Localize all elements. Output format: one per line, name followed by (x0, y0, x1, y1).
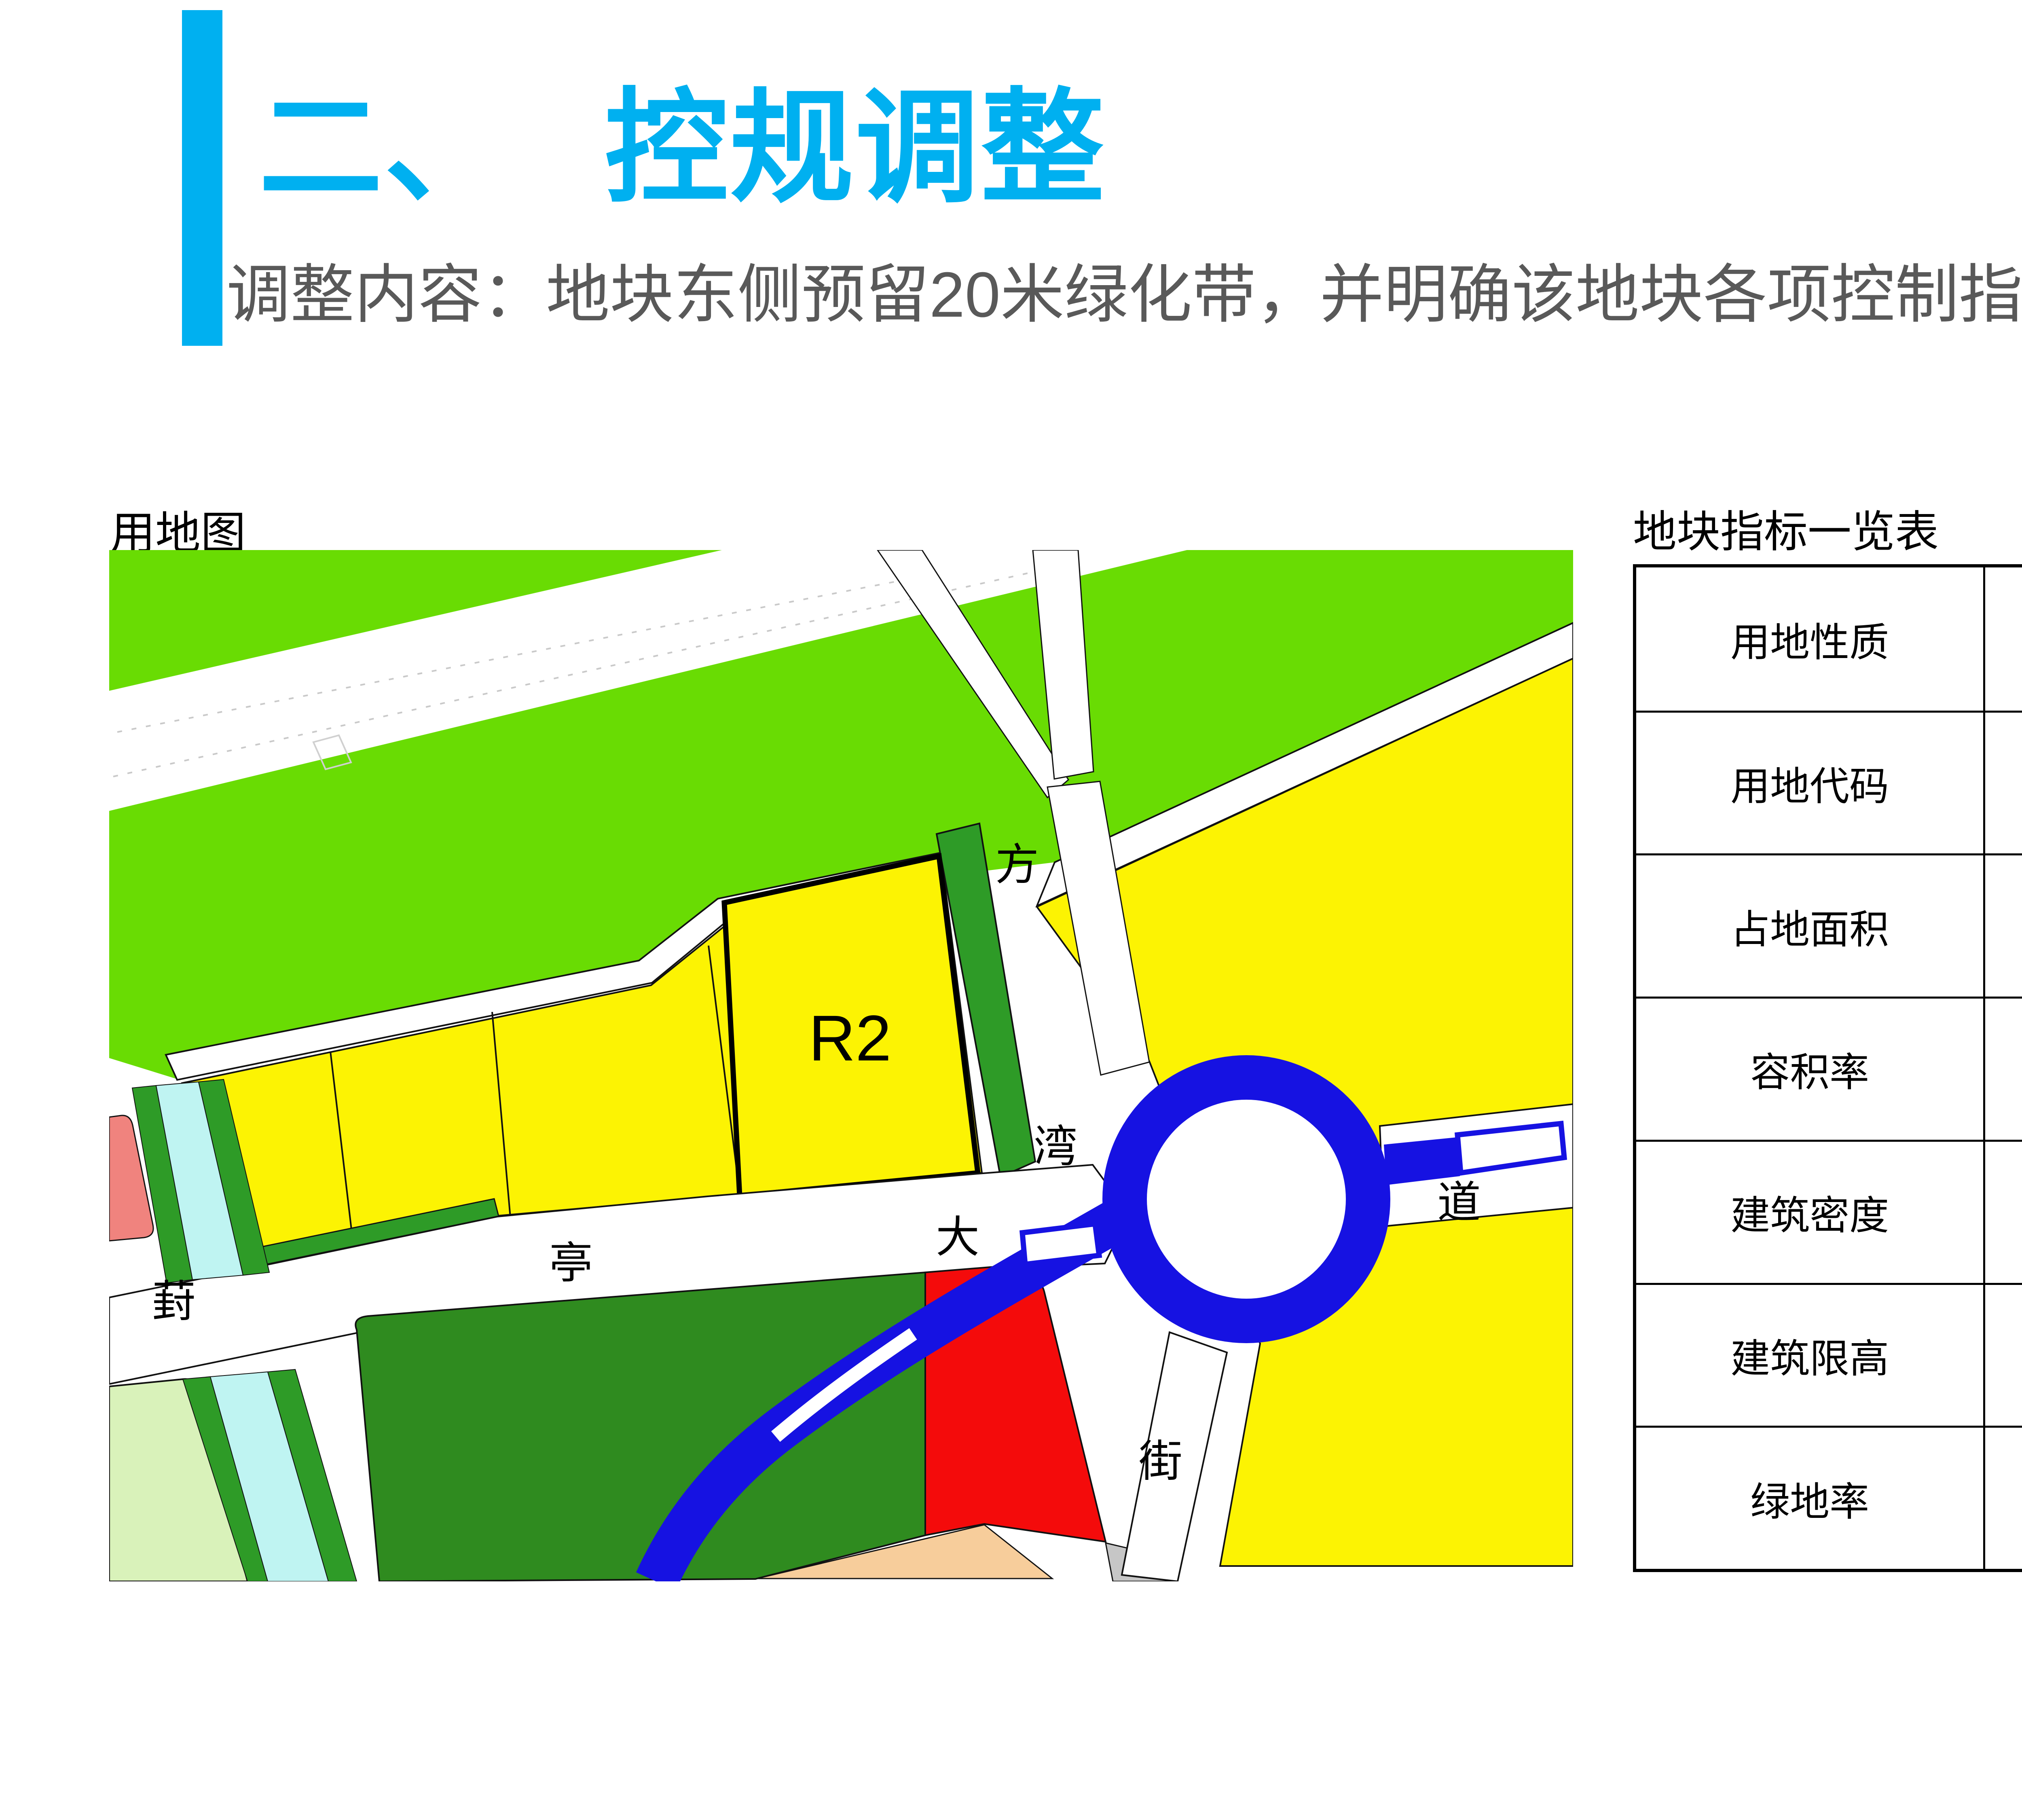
page-title: 二、控规调整 (259, 48, 1106, 227)
table-title: 地块指标一览表 (1633, 497, 1939, 560)
landuse-map-svg: 方 湾 葑 亭 大 道 街 R2 (109, 550, 1573, 1581)
table-row-value: 25% (1983, 1140, 2022, 1283)
table-row-label: 建筑密度 (1636, 1140, 1983, 1283)
label-avenue-char3: 大 (936, 1213, 979, 1261)
table-row-value: 2.18公顷 (1983, 853, 2022, 997)
landuse-map: 方 湾 葑 亭 大 道 街 R2 (109, 550, 1573, 1581)
table-row-label: 绿地率 (1636, 1426, 1983, 1569)
page-title-number: 二、 (259, 79, 510, 217)
table-row-label: 用地代码 (1636, 711, 1983, 854)
table-row-value: 35%-50% (1983, 1426, 2022, 1569)
label-north-road-char1: 方 (995, 840, 1039, 889)
table-row-label: 容积率 (1636, 997, 1983, 1140)
indicator-table: 用地性质 二类居住用地 用地代码 R2 占地面积 2.18公顷 容积率 1.5-… (1633, 564, 2022, 1572)
label-north-road-char2: 湾 (1034, 1122, 1077, 1171)
slide: { "slide": { "title_prefix": "二、", "titl… (0, 0, 2022, 1820)
title-accent-bar (182, 10, 222, 346)
subtitle-text: 调整内容：地块东侧预留20米绿化带，并明确该地块各项控制指标。 (226, 243, 2022, 335)
table-row-label: 用地性质 (1636, 567, 1983, 711)
table-row-value: 60米 (1983, 1283, 2022, 1426)
page-title-text: 控规调整 (605, 79, 1106, 217)
table-row-value: 1.5-1.6 (1983, 997, 2022, 1140)
table-row-value: 二类居住用地 (1983, 567, 2022, 711)
table-row-label: 占地面积 (1636, 853, 1983, 997)
label-avenue-char4: 道 (1437, 1178, 1481, 1227)
table-row-value: R2 (1983, 711, 2022, 854)
blue-stripe-west-outline (1022, 1224, 1099, 1264)
label-south-road-char: 街 (1139, 1437, 1182, 1486)
label-avenue-char2: 亭 (549, 1238, 593, 1287)
label-avenue-char1: 葑 (152, 1277, 196, 1326)
label-parcel-r2: R2 (809, 1002, 892, 1074)
table-row-label: 建筑限高 (1636, 1283, 1983, 1426)
parcel-dark-green (355, 1272, 925, 1581)
roundabout-center (1147, 1100, 1346, 1299)
